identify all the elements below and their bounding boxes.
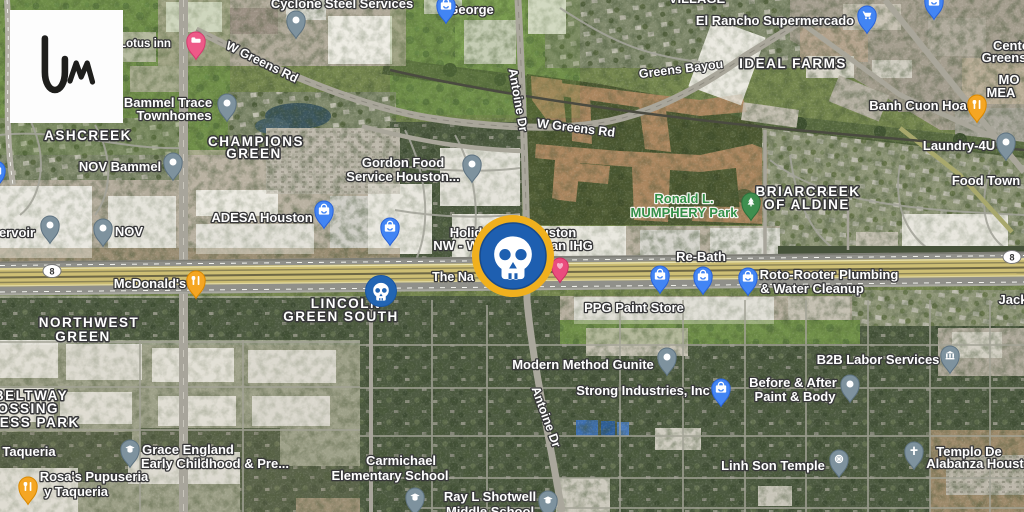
svg-text:Taqueria: Taqueria — [2, 444, 56, 459]
svg-text:OF ALDINE: OF ALDINE — [764, 197, 850, 212]
svg-text:MUMPHERY Park: MUMPHERY Park — [631, 205, 739, 220]
svg-text:Service Houston...: Service Houston... — [346, 169, 459, 184]
svg-text:Banh Cuon Hoa: Banh Cuon Hoa — [869, 98, 967, 113]
svg-text:NOV Bammel: NOV Bammel — [79, 159, 161, 174]
svg-text:Strong Industries, Inc: Strong Industries, Inc — [576, 383, 710, 398]
svg-text:VILLAGE: VILLAGE — [669, 0, 726, 6]
svg-text:MEA: MEA — [987, 85, 1017, 100]
svg-text:Carmichael: Carmichael — [366, 453, 436, 468]
svg-text:Jack: Jack — [999, 292, 1024, 307]
svg-text:Greensp: Greensp — [982, 50, 1024, 65]
svg-text:Townhomes: Townhomes — [137, 108, 212, 123]
svg-text:El Rancho Supermercado: El Rancho Supermercado — [696, 13, 854, 28]
svg-text:Linh Son Temple: Linh Son Temple — [721, 458, 825, 473]
svg-text:Elementary School: Elementary School — [331, 468, 448, 483]
svg-text:B2B Labor Services: B2B Labor Services — [817, 352, 940, 367]
svg-text:Grace England: Grace England — [142, 442, 234, 457]
svg-text:Rosa's Pupuseria: Rosa's Pupuseria — [40, 469, 149, 484]
svg-text:The Na: The Na — [432, 270, 475, 284]
svg-text:GREEN: GREEN — [55, 329, 111, 344]
svg-text:Ray L Shotwell: Ray L Shotwell — [444, 489, 536, 504]
svg-text:Ronald L.: Ronald L. — [654, 191, 713, 206]
svg-text:Early Childhood & Pre...: Early Childhood & Pre... — [141, 456, 289, 471]
svg-text:Before & After: Before & After — [749, 375, 837, 390]
svg-text:y Taqueria: y Taqueria — [44, 484, 109, 499]
svg-text:Middle School: Middle School — [446, 504, 534, 512]
svg-text:ASHCREEK: ASHCREEK — [44, 128, 132, 143]
svg-text:Paint & Body: Paint & Body — [755, 389, 837, 404]
svg-text:& Water Cleanup: & Water Cleanup — [760, 281, 864, 296]
svg-text:NOV: NOV — [115, 224, 144, 239]
svg-text:Alabanza Houst: Alabanza Houst — [926, 456, 1024, 471]
svg-text:Gordon Food: Gordon Food — [362, 155, 444, 170]
svg-text:NORTHWEST: NORTHWEST — [39, 315, 140, 330]
svg-text:Lotus inn: Lotus inn — [119, 38, 171, 50]
svg-text:Laundry-4U: Laundry-4U — [923, 138, 995, 153]
svg-text:CROSSING: CROSSING — [0, 401, 59, 416]
svg-text:Modern Method Gunite: Modern Method Gunite — [512, 357, 654, 372]
svg-text:McDonald's: McDonald's — [114, 276, 186, 291]
svg-text:8: 8 — [1009, 253, 1014, 263]
svg-text:PPG Paint Store: PPG Paint Store — [584, 300, 684, 315]
svg-text:Cyclone Steel Services: Cyclone Steel Services — [271, 0, 413, 11]
svg-text:ervoir: ervoir — [0, 225, 35, 240]
svg-text:ADESA Houston: ADESA Houston — [211, 210, 312, 225]
svg-text:GREEN SOUTH: GREEN SOUTH — [283, 309, 399, 324]
svg-text:GREEN: GREEN — [226, 146, 282, 161]
svg-text:Roto-Rooter Plumbing: Roto-Rooter Plumbing — [760, 267, 899, 282]
svg-text:Re-Bath: Re-Bath — [676, 249, 726, 264]
svg-text:BUSINESS PARK: BUSINESS PARK — [0, 415, 80, 430]
svg-text:Food Town: Food Town — [952, 173, 1020, 188]
svg-text:IDEAL FARMS: IDEAL FARMS — [739, 56, 847, 71]
svg-text:8: 8 — [49, 267, 54, 277]
